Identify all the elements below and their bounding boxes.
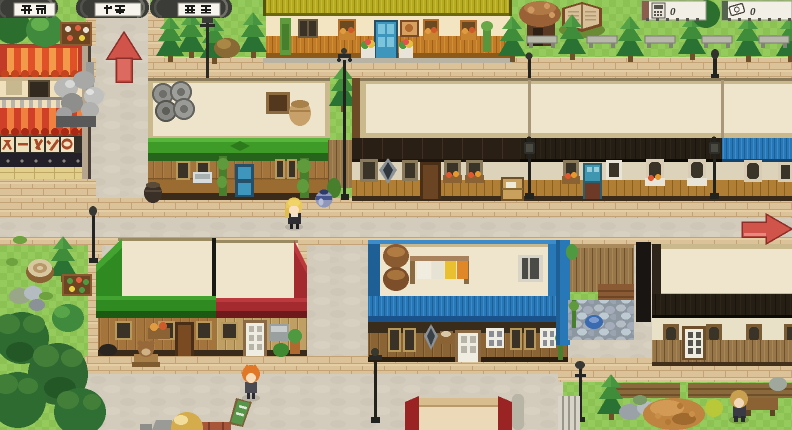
svg-text:0: 0 xyxy=(670,6,676,18)
svg-text:0: 0 xyxy=(750,6,756,18)
